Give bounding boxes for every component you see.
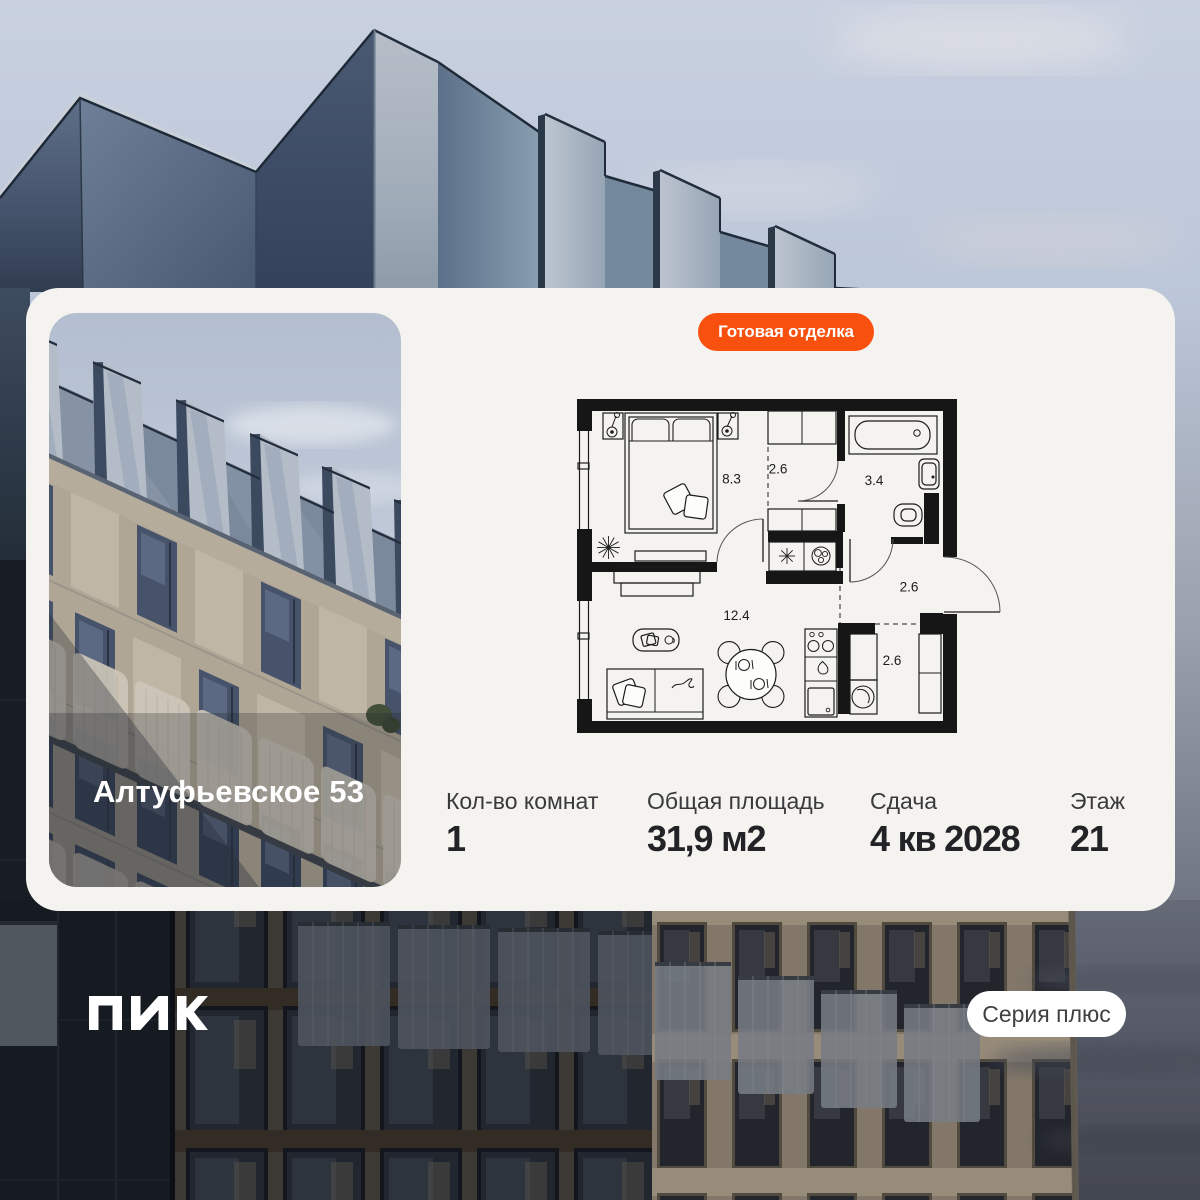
svg-text:2.6: 2.6: [900, 580, 919, 595]
svg-text:3.4: 3.4: [865, 473, 884, 488]
svg-text:2.6: 2.6: [769, 462, 788, 477]
svg-text:8.3: 8.3: [722, 472, 741, 487]
svg-text:12.4: 12.4: [723, 608, 750, 623]
svg-text:2.6: 2.6: [883, 653, 902, 668]
